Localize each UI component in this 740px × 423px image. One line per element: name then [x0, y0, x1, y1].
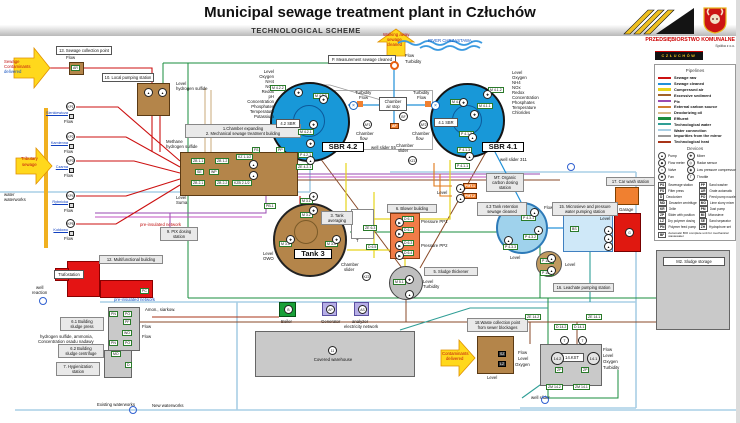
throttle-icon: T [560, 336, 569, 345]
diagram-label: New waterworks [152, 404, 184, 409]
flow-meter-icon [69, 168, 74, 173]
centrifuge-building-label: 6.2 Building sludge centrifuge [58, 344, 104, 358]
device-tag: KZB 2.1/2 [232, 180, 252, 186]
pumping-station-kp3: KP3 [66, 156, 75, 165]
diagram-label: Level [600, 217, 610, 222]
mixer-icon: ✚ [470, 110, 479, 119]
coat-of-arms-icon [704, 8, 726, 33]
diagram-label: cleaned [387, 43, 402, 48]
diagram-label: Turbidity [603, 366, 619, 371]
diagram-label: T [356, 239, 359, 244]
diagram-label: Potassium [238, 115, 274, 120]
device-tag: PN [109, 311, 118, 317]
device-tag: D 14.2 [554, 324, 568, 330]
device-tag: ZB 1.1 [191, 158, 205, 164]
diagram-label: hydrogen sulfide [166, 145, 198, 150]
device-tag: SZ [498, 351, 506, 357]
diagram-label: Flow [142, 325, 151, 330]
retention-label: 4.3 Tank retention sewage cleaned [477, 202, 527, 216]
device-tag: ZE 14.2 [525, 314, 541, 320]
device-tag: BS [570, 226, 579, 232]
mixer-icon: ✚ [319, 95, 328, 104]
device-tag: P 4.1.1 [455, 163, 470, 169]
device-tag: SE [195, 169, 204, 175]
flow-chamber-2: AF2 [419, 120, 428, 129]
well-icon [39, 297, 47, 305]
device-tag: MO [111, 351, 121, 357]
diagram-label: electricity network [344, 325, 378, 330]
pump-icon: ▲ [547, 266, 556, 275]
pumping-station-name: Sienkiewicza [42, 111, 68, 115]
diagram-label: OWO [263, 257, 274, 262]
pump-icon: ▲ [534, 226, 543, 235]
device-tag: KZ 1.1/2 [236, 154, 253, 160]
flow-meter-icon [69, 203, 74, 208]
diagram-label: Covered warehouse [302, 358, 364, 363]
pump-icon: ▲ [456, 184, 465, 193]
tank3-plate: 3. Tank averaging [321, 211, 353, 225]
device-tag: ZB 2.1 [191, 180, 205, 186]
device-tag: PB.1 [264, 203, 276, 209]
device-tag: P 4.3.3 [503, 244, 518, 250]
pump-icon: ▲ [465, 152, 474, 161]
multifunctional-label: 12. Multifunctional building [99, 255, 163, 264]
throttle-icon: T [578, 336, 587, 345]
flow-meter-icon [69, 114, 74, 119]
mixer-icon: ✚ [309, 120, 318, 129]
diagram-label: Flow [359, 96, 368, 101]
pump-icon: ▲ [530, 208, 539, 217]
collection-point-label: 13. Sewage collection point [56, 46, 112, 55]
waste-point-label: 18.Waste collection point from sewer blo… [467, 318, 528, 332]
pumping-station-kp2: KP2 [66, 132, 75, 141]
blower-label: 6. Blower building [387, 204, 437, 213]
device-tag: FS [252, 147, 260, 153]
blower-icon: ▶ [395, 229, 404, 238]
chamber-slider-kz1: KZ1 [408, 156, 417, 165]
device-tag: PC [140, 288, 149, 294]
device-tag: AR [71, 65, 80, 71]
device-tag: PO [123, 340, 132, 346]
sbr42-label: SBR 4.2 [322, 142, 364, 152]
device-tag: ZM 14.2 [546, 384, 563, 390]
device-tag: M 4.2.2 [270, 85, 286, 91]
measurement-label: P. Measurement sewage cleaned [328, 55, 396, 64]
pump-icon: ▲ [504, 236, 513, 245]
analyzer-icon: AS [358, 305, 367, 314]
collector-bar [44, 108, 48, 248]
pumping-station-kp4: KP4 [66, 191, 75, 200]
diagram-label: Oxygen [515, 363, 530, 368]
scheme-canvas: Municipal sewage treatment plant in Człu… [0, 0, 740, 423]
pump-icon: ▲ [405, 290, 414, 299]
blower-icon: ▶ [395, 251, 404, 260]
device-tag: D [125, 362, 132, 368]
pumping-station-kp1: KP1 [66, 102, 75, 111]
diagram-label: Pressure PP1 [421, 220, 448, 225]
device-tag: ZB 1.2 [215, 158, 229, 164]
pumping-station-name: Kołdowo [42, 228, 68, 232]
well-icon [541, 396, 549, 404]
valve-icon: × [349, 101, 358, 110]
air-stop-label: Chamber air stop [379, 97, 407, 111]
valve-icon: × [431, 101, 440, 110]
press-building-label: 6.1 Building sludge press [60, 317, 104, 331]
local-pumping-label: 10. Local pumping station [102, 73, 154, 82]
device-tag: ZE 14.1 [586, 314, 602, 320]
mixer-icon: ✚ [306, 139, 315, 148]
mt-station-label: MT. Organic carbon dosing station [486, 173, 524, 192]
diagram-label: Amon., siarkow. [145, 308, 175, 313]
device-tag: M 4.2.1 [298, 129, 314, 135]
device-tag: ZP [581, 367, 589, 373]
thickener-label: 5. Sludge thickener [424, 267, 478, 276]
mixer-icon: ✚ [405, 275, 414, 284]
device-tag: M 4.1.1 [477, 103, 493, 109]
diagram-label: pre-insulated network [114, 298, 155, 303]
diagram-label: slider [344, 268, 354, 273]
carwash-building [615, 187, 639, 205]
diagram-label: Level [437, 191, 447, 196]
hygienization-label: 7. Hygienization station [56, 362, 100, 376]
leachate-label: 16. Leachate pumping station [553, 283, 614, 292]
diagram-label: Turbidity [405, 60, 421, 65]
company-logo [622, 6, 734, 36]
pump-icon: ▲ [249, 160, 258, 169]
device-tag: ZP [555, 367, 563, 373]
diagram-label: Chlorides [512, 111, 530, 116]
flow-meter-icon [69, 144, 74, 149]
diagram-label: Level [510, 256, 520, 261]
bf-unit: BF [399, 112, 408, 121]
blower-icon: ▶ [395, 218, 404, 227]
device-tag: D 14.1 [572, 324, 586, 330]
device-tag: ZM 14.1 [573, 384, 590, 390]
microsieve-label: 15. Microsieve and pressure water pumpin… [552, 202, 618, 216]
device-tag: D 6.5 [366, 244, 378, 250]
well-icon [129, 406, 137, 414]
diagram-label: waterworks [4, 198, 26, 203]
diagram-label: slider [398, 149, 408, 154]
flow-meter-icon [69, 231, 74, 236]
pump-icon: ▲ [306, 156, 315, 165]
flow-label: Flow [64, 120, 73, 125]
sbr42-inner-label: 4.2 SBR [276, 119, 300, 128]
mixer-icon: ✚ [483, 90, 492, 99]
mixer-icon: ✚ [332, 235, 341, 244]
diagram-label: Generator [321, 320, 340, 325]
device-tag: LZ [498, 361, 506, 367]
device-tag: WO [122, 330, 132, 336]
kst-unit-1: 14.1 [587, 352, 600, 365]
diagram-label: flow [416, 137, 424, 142]
mixer-icon: ✚ [286, 235, 295, 244]
pump-icon: ▲ [158, 88, 167, 97]
boiler-icon: B [284, 305, 293, 314]
flow-label: Flow [64, 150, 73, 155]
flow-label: Flow [64, 209, 73, 214]
device-tag: WP [209, 169, 219, 175]
device-tag: PP [276, 147, 285, 153]
waste-collection-building [477, 336, 514, 374]
pumping-station-name: Kamienna [42, 141, 68, 145]
averaging-tank-inner-ring [294, 220, 318, 244]
chamber-slider-kz3: KZ3 [362, 272, 371, 281]
diagram-label: Level [487, 376, 497, 381]
mixer-icon: ✚ [309, 206, 318, 215]
well-icon [567, 163, 575, 171]
pump-icon: ▲ [456, 194, 465, 203]
diagram-label: well slider 311 [500, 158, 527, 163]
m2-storage-label: M2. Sludge storage [663, 257, 725, 266]
diagram-label: Level [565, 263, 575, 268]
diagram-label: Flow [66, 56, 75, 61]
blower-icon: ▶ [395, 241, 404, 250]
device-tag: M 5.1 [393, 279, 406, 285]
valve-chamber [351, 209, 374, 239]
diagram-label: RIVER CHRZĄSTAWA [428, 39, 472, 44]
tank3-label: Tank 3 [294, 249, 332, 259]
pumping-station-name: Rybnicka [42, 200, 68, 204]
diagram-label: delivered [4, 70, 21, 75]
kst-unit-2: 14.2 [551, 352, 564, 365]
pump-icon: ▲ [468, 133, 477, 142]
diagram-label: Flow [417, 96, 426, 101]
device-tag: ZE 6.3 [363, 225, 377, 231]
diagram-label: Boiler [281, 320, 292, 325]
diagram-label: Pressure PP2 [421, 244, 448, 249]
pump-icon: ▲ [547, 254, 556, 263]
pumping-station-name: Czarna [42, 165, 68, 169]
deodorizing-oil-lines [205, 88, 211, 152]
diagram-label: delivered [446, 357, 463, 362]
flow-label: Flow [64, 174, 73, 179]
mixer-icon: ✚ [459, 98, 468, 107]
flow-label: Flow [64, 237, 73, 242]
device-tag: PMT.2 [463, 193, 477, 199]
diagram-label: Flow [142, 335, 151, 340]
device-tag: P 4.3.2 [523, 234, 538, 240]
pump-icon: ▲ [604, 242, 613, 251]
device-tag: ZB 2.2 [215, 180, 229, 186]
sbr41-inner-label: 4.1 SBR [434, 118, 458, 127]
device-tag: PN [109, 340, 118, 346]
pump-icon: ▲ [249, 171, 258, 180]
garage-icon: G [625, 228, 634, 237]
device-tag: PMT.1 [463, 183, 477, 189]
pumping-station-kp5: KP5 [66, 219, 75, 228]
diagram-label: well slider 55 [371, 146, 396, 151]
carwash-label: 17. Car wash station [606, 177, 655, 186]
diagram-label: reaction [32, 291, 47, 296]
diagram-label: sewage [22, 163, 37, 168]
trafostation-label: Trafostation [54, 270, 84, 279]
flow-chamber-1: AF1 [363, 120, 372, 129]
device-tag: AF [390, 123, 399, 129]
mixer-icon: ✚ [309, 192, 318, 201]
sbr41-label: SBR 4.1 [482, 142, 524, 152]
pix-station-label: 9. PIX dosing station [160, 227, 198, 241]
pump-icon: ▲ [144, 88, 153, 97]
generator-icon: AP [326, 305, 335, 314]
measurement-point [390, 61, 399, 70]
diagram-label: Garage [619, 208, 633, 213]
warehouse-number: 11 [328, 346, 337, 355]
device-tag: PF [123, 319, 131, 325]
diagram-label: hydrogen sulfide [176, 87, 208, 92]
mixer-icon: ✚ [294, 88, 303, 97]
diagram-label: Suma [176, 201, 187, 206]
diagram-label: Turbidity [423, 285, 439, 290]
device-tag: PO [123, 311, 132, 317]
kst-station [540, 344, 602, 386]
